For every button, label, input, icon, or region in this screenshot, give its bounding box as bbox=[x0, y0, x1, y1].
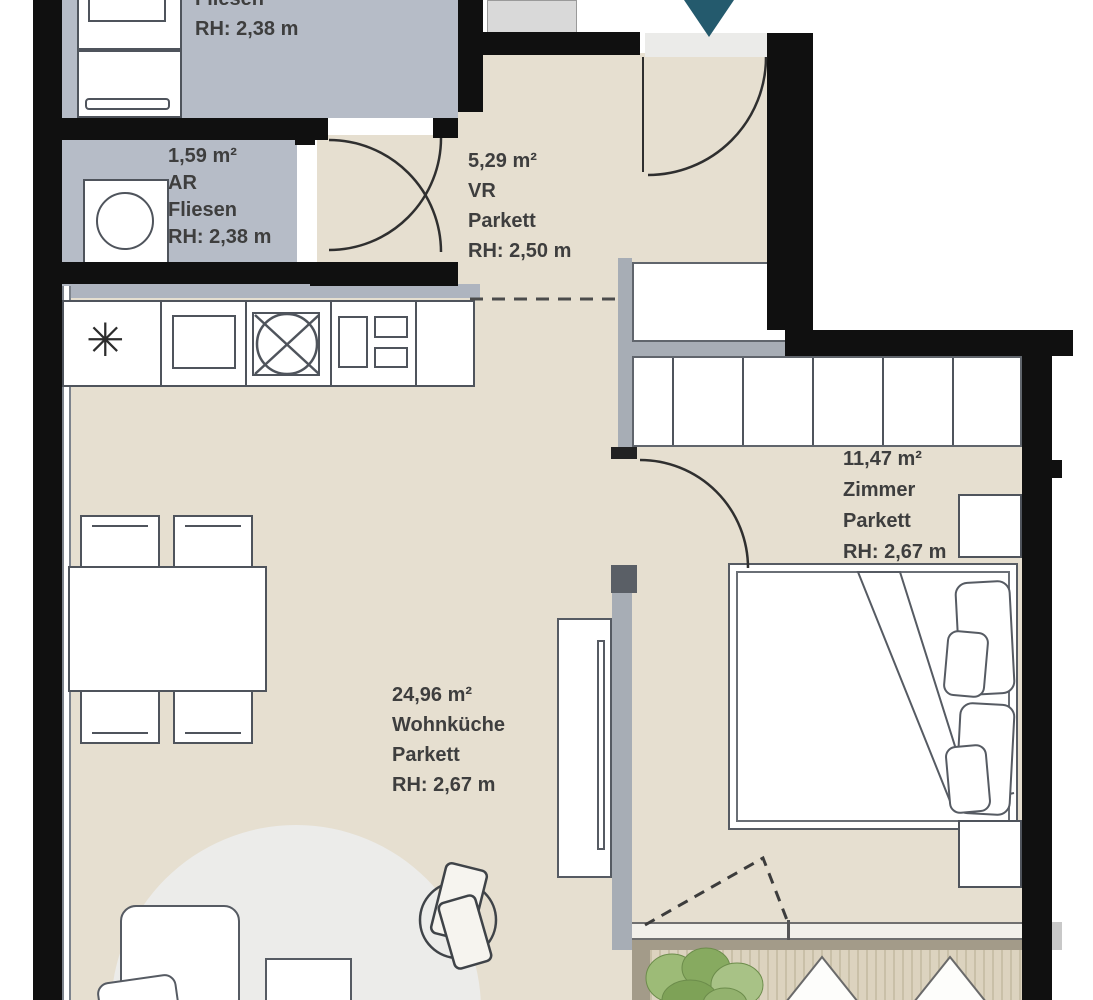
bathtub-slot bbox=[85, 98, 170, 110]
tv-panel bbox=[597, 640, 605, 850]
glazing-mullion bbox=[787, 920, 790, 942]
storage-room-label: 1,59 m² AR Fliesen RH: 2,38 m bbox=[168, 143, 271, 251]
freezer-star-icon: ✳ bbox=[86, 310, 125, 370]
wardrobe bbox=[632, 356, 1022, 447]
room-area: 5,29 m² bbox=[468, 146, 571, 176]
entrance-arrow-icon bbox=[684, 0, 734, 37]
room-ceiling-height: RH: 2,38 m bbox=[195, 14, 298, 44]
hob-part bbox=[338, 316, 368, 368]
room-ceiling-height: RH: 2,67 m bbox=[843, 537, 946, 568]
room-floor-type: Fliesen bbox=[195, 0, 298, 14]
room-area: 24,96 m² bbox=[392, 680, 505, 710]
bathroom-label: Fliesen RH: 2,38 m bbox=[195, 0, 298, 44]
room-name: AR bbox=[168, 170, 271, 197]
wall bbox=[33, 0, 62, 1000]
room-floor-type: Parkett bbox=[468, 206, 571, 236]
balcony-glazing bbox=[632, 922, 1022, 940]
wall bbox=[310, 262, 458, 286]
wall-end-cap bbox=[611, 447, 637, 459]
room-name: Zimmer bbox=[843, 475, 946, 506]
fixture-divider bbox=[77, 48, 182, 52]
washing-machine-drum bbox=[96, 192, 154, 250]
oven bbox=[172, 315, 236, 369]
bedroom-label: 11,47 m² Zimmer Parkett RH: 2,67 m bbox=[843, 444, 946, 568]
room-name: Wohnküche bbox=[392, 710, 505, 740]
room-floor-type: Parkett bbox=[392, 740, 505, 770]
chair bbox=[173, 515, 253, 569]
room-area: 1,59 m² bbox=[168, 143, 271, 170]
room-name: VR bbox=[468, 176, 571, 206]
wall bbox=[458, 0, 483, 112]
washbasin bbox=[88, 0, 166, 22]
mattress-outline bbox=[736, 571, 1010, 822]
hob-part bbox=[374, 347, 408, 368]
hallway-label: 5,29 m² VR Parkett RH: 2,50 m bbox=[468, 146, 571, 266]
wall bbox=[785, 330, 1073, 356]
wall bbox=[767, 33, 813, 330]
entrance-threshold bbox=[645, 33, 768, 57]
door-jamb bbox=[295, 133, 315, 145]
chair bbox=[173, 690, 253, 744]
room-ceiling-height: RH: 2,67 m bbox=[392, 770, 505, 800]
wall bbox=[1022, 356, 1052, 1000]
room-ceiling-height: RH: 2,38 m bbox=[168, 224, 271, 251]
shaft bbox=[487, 0, 577, 33]
chair bbox=[80, 690, 160, 744]
floor-plan: ✳ bbox=[0, 0, 1093, 1000]
balcony-edge bbox=[632, 940, 1062, 950]
hob-part bbox=[374, 316, 408, 338]
room-ceiling-height: RH: 2,50 m bbox=[468, 236, 571, 266]
wall bbox=[62, 118, 328, 140]
wall bbox=[618, 258, 632, 459]
door-jamb bbox=[611, 565, 637, 593]
door-jamb bbox=[433, 118, 458, 138]
wall bbox=[458, 32, 640, 55]
living-kitchen-label: 24,96 m² Wohnküche Parkett RH: 2,67 m bbox=[392, 680, 505, 800]
alcove-floor bbox=[317, 135, 458, 262]
nightstand bbox=[958, 820, 1022, 888]
room-floor-type: Parkett bbox=[843, 506, 946, 537]
wall bbox=[62, 262, 315, 284]
wall-tick bbox=[1052, 460, 1062, 478]
balcony-edge bbox=[632, 942, 650, 1000]
nightstand bbox=[958, 494, 1022, 558]
wall bbox=[618, 340, 790, 356]
room-floor-type: Fliesen bbox=[168, 197, 271, 224]
wall bbox=[612, 593, 632, 950]
dining-table bbox=[68, 566, 267, 692]
side-table bbox=[265, 958, 352, 1000]
balcony-deck bbox=[650, 950, 1052, 1000]
sink bbox=[252, 312, 320, 376]
chair bbox=[80, 515, 160, 569]
room-area: 11,47 m² bbox=[843, 444, 946, 475]
